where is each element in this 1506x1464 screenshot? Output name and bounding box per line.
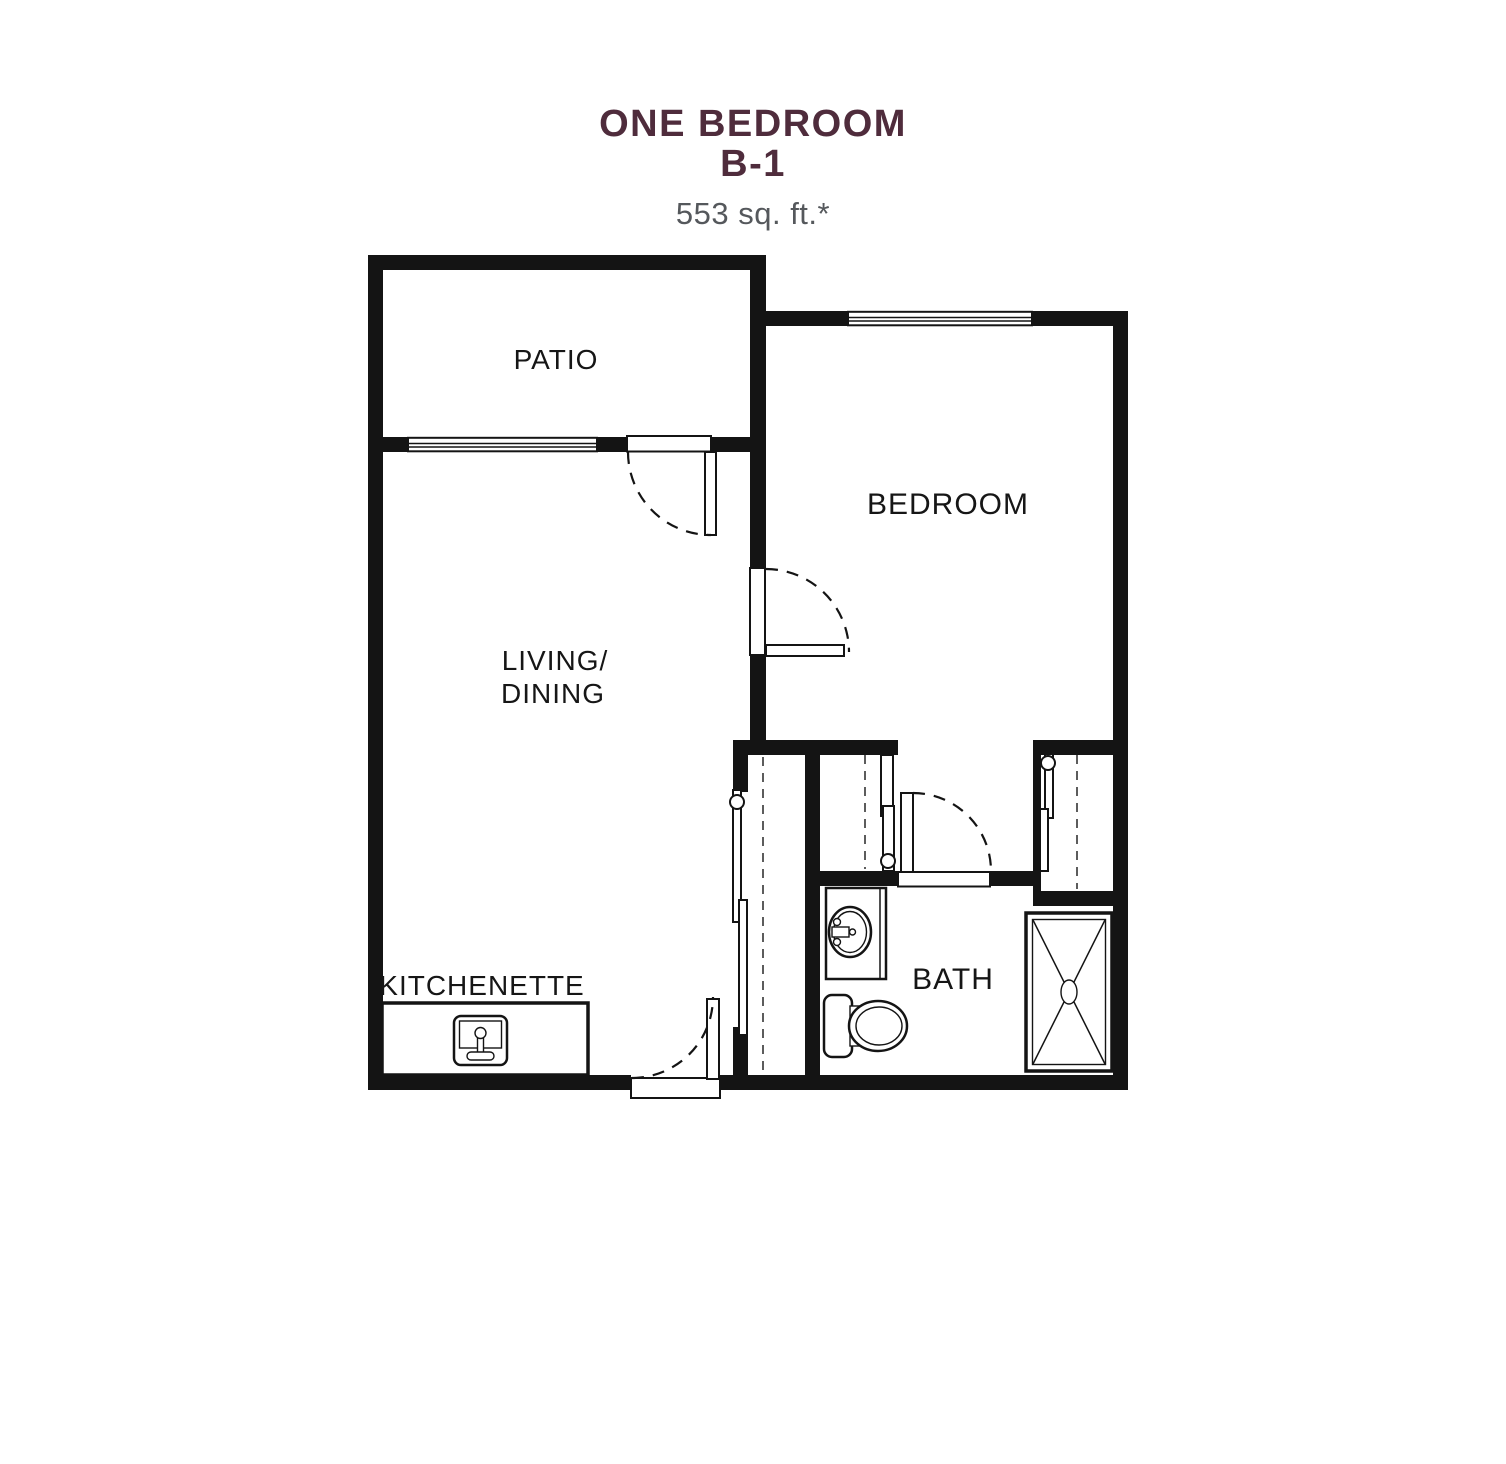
bath-sink-icon <box>826 888 886 979</box>
patio-label: PATIO <box>514 344 599 375</box>
patio-bottom-wall-seg <box>711 437 750 452</box>
patio-door-swing-arc <box>628 452 711 535</box>
window-symbol-patio <box>408 438 597 452</box>
closet-jamb-top <box>733 755 748 792</box>
bath-label: BATH <box>912 963 994 996</box>
patio-top-wall <box>368 255 766 270</box>
bath-door-panel <box>901 793 913 872</box>
bedroom-south-wall-left <box>733 740 898 755</box>
floor-plan: PATIO BEDROOM LIVING/ DINING KITCHENETTE… <box>0 0 1506 1464</box>
door-knob-icon <box>881 854 895 868</box>
door-knob-icon <box>1041 756 1055 770</box>
sliding-door-panel <box>739 900 747 1035</box>
kitchen-sink-icon <box>454 1016 507 1065</box>
bottom-wall-left <box>368 1075 631 1090</box>
entry-door-panel <box>707 999 719 1079</box>
bedroom-south-wall-right <box>1033 740 1128 755</box>
bath-door-swing-arc <box>913 793 991 871</box>
kitchenette-fixtures <box>382 1003 588 1075</box>
patio-door-header <box>627 436 711 452</box>
windows <box>408 312 1032 452</box>
patio-bottom-wall-seg <box>597 437 627 452</box>
bedroom-closet-bottom-wall <box>1033 891 1128 906</box>
entry-door-swing-arc <box>632 997 713 1078</box>
left-wall <box>368 255 383 1090</box>
patio-door-panel <box>705 452 716 535</box>
sliding-door-panel <box>1040 809 1048 871</box>
closet-east-wall <box>805 755 820 1075</box>
window-symbol-bedroom <box>848 312 1032 326</box>
shower-icon <box>1026 913 1112 1071</box>
right-wall <box>1113 311 1128 1090</box>
entry-door-sill <box>631 1078 720 1098</box>
door-knob-icon <box>730 795 744 809</box>
divider-wall-upper <box>750 255 766 568</box>
bath-door-side-wall <box>990 871 1036 886</box>
bedroom-door-panel <box>766 645 844 656</box>
patio-bottom-wall-seg <box>368 437 408 452</box>
living-label-line2: DINING <box>501 678 605 709</box>
kitchenette-label: KITCHENETTE <box>379 970 584 1001</box>
living-label-line1: LIVING/ <box>502 645 609 676</box>
bedroom-door-opening <box>750 568 765 655</box>
linen-closet-bottom-wall <box>805 871 898 886</box>
bedroom-label: BEDROOM <box>867 488 1029 521</box>
bedroom-top-wall-seg <box>750 311 848 326</box>
bath-door-sill <box>898 872 990 887</box>
bedroom-door-swing-arc <box>766 569 849 652</box>
toilet-icon <box>824 995 907 1057</box>
bottom-wall-right <box>714 1075 1128 1090</box>
